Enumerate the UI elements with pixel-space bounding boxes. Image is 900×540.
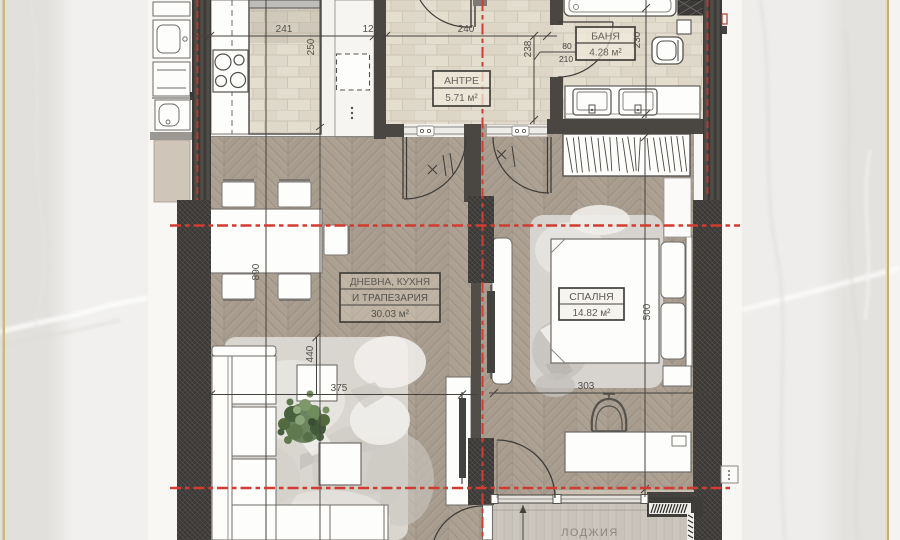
svg-text:5.71 м²: 5.71 м² [445,93,478,104]
svg-text:303: 303 [578,381,595,392]
svg-text:12: 12 [362,24,374,35]
svg-text:250: 250 [306,38,317,55]
svg-text:375: 375 [331,383,348,394]
svg-text:210: 210 [559,54,573,64]
svg-text:И ТРАПЕЗАРИЯ: И ТРАПЕЗАРИЯ [352,293,428,304]
svg-text:14.82 м²: 14.82 м² [572,308,611,319]
svg-text:СПАЛНЯ: СПАЛНЯ [569,291,613,303]
svg-text:890: 890 [251,263,262,280]
svg-text:ЛОДЖИЯ: ЛОДЖИЯ [561,527,618,539]
svg-text:4.28 м²: 4.28 м² [589,48,622,59]
svg-text:240: 240 [458,24,475,35]
svg-text:238: 238 [523,40,534,57]
svg-text:80: 80 [562,41,572,51]
svg-text:30.03 м²: 30.03 м² [371,309,410,320]
svg-text:БАНЯ: БАНЯ [591,31,620,43]
svg-text:440: 440 [305,345,316,362]
svg-text:241: 241 [276,24,293,35]
svg-text:ДНЕВНА, КУХНЯ: ДНЕВНА, КУХНЯ [350,277,430,288]
svg-text:500: 500 [642,303,653,320]
svg-text:АНТРЕ: АНТРЕ [444,75,479,87]
